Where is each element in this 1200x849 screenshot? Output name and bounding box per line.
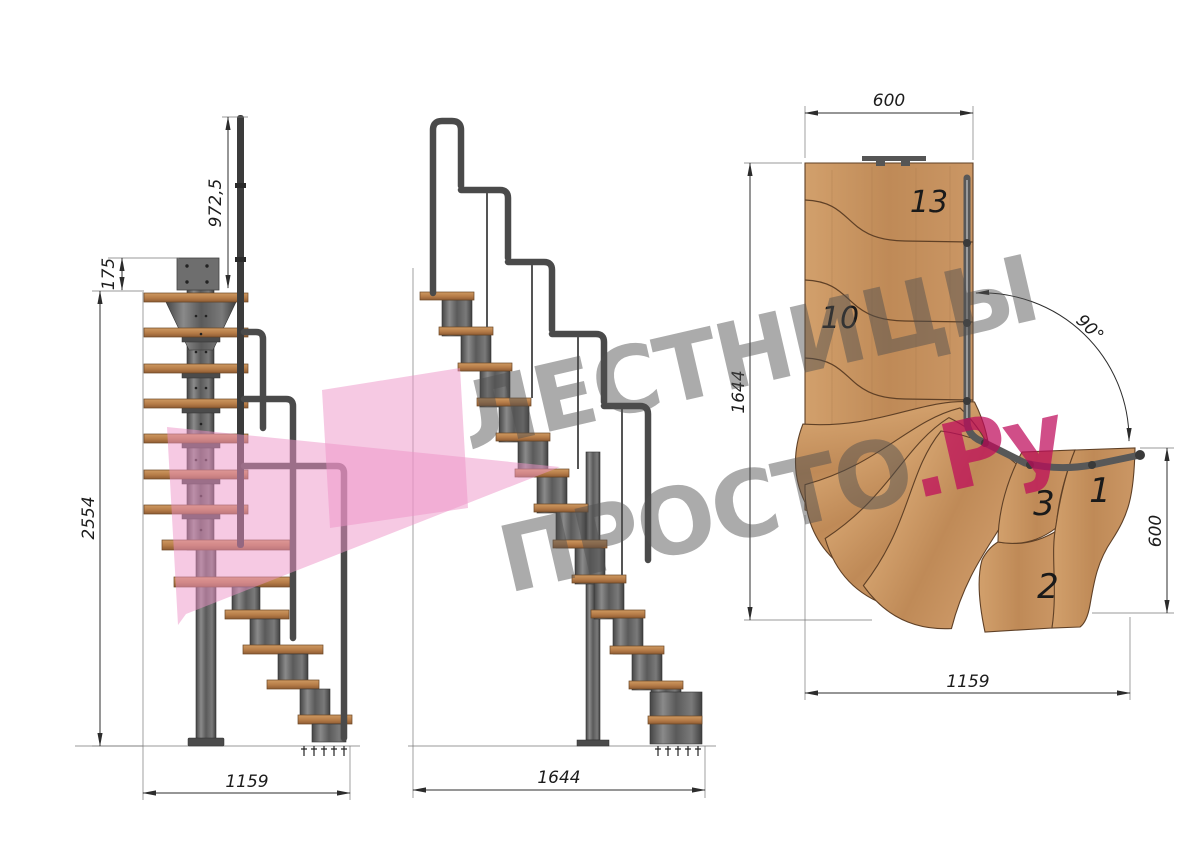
tread (591, 610, 645, 618)
post-base-plate (577, 740, 609, 746)
tread (439, 327, 493, 335)
tread (144, 364, 248, 373)
step-module (278, 654, 308, 682)
tread (610, 646, 664, 654)
tread (477, 398, 531, 406)
dim-turn-angle: 90° (1072, 311, 1108, 346)
dim-handrail-height: 972,5 (206, 179, 226, 228)
handrail-loop (433, 121, 461, 293)
side-view-steps (420, 292, 702, 744)
side-view-dimensions: 1644 (413, 746, 705, 798)
staircase-drawing-svg: 2554 175 972,5 1159 (0, 0, 1200, 849)
tread (225, 610, 289, 619)
tread (648, 716, 702, 724)
tread (629, 681, 683, 689)
plan-handrail (963, 178, 1145, 469)
tread (420, 292, 474, 300)
column-base-plate (188, 738, 224, 746)
tread (496, 433, 550, 441)
dim-left-length: 1644 (729, 370, 749, 413)
step-label-3: 3 (1033, 484, 1055, 524)
step-label-10: 10 (821, 301, 859, 336)
logo-shape-arrow (167, 427, 560, 625)
tread (144, 328, 248, 337)
tread (267, 680, 319, 689)
tread (572, 575, 626, 583)
dim-bottom-length: 1159 (946, 672, 989, 692)
dim-right-width: 600 (1146, 515, 1166, 547)
tread (553, 540, 607, 548)
plan-view: 13 10 3 1 2 600 1644 90° 600 1159 (729, 91, 1174, 700)
tread (243, 645, 323, 654)
dim-top-width: 600 (873, 91, 905, 111)
dim-total-height: 2554 (79, 496, 99, 539)
tread (144, 399, 248, 408)
column-flare (166, 302, 236, 350)
tread (458, 363, 512, 371)
step-label-13: 13 (910, 185, 948, 220)
step-module (300, 689, 330, 717)
dim-base-width: 1159 (225, 772, 268, 792)
tread (144, 293, 248, 302)
top-mounting-plate (177, 258, 219, 290)
step-module (250, 619, 280, 647)
tread (534, 504, 588, 512)
technical-drawing-page: 2554 175 972,5 1159 (0, 0, 1200, 849)
anchor-bolts (655, 746, 701, 756)
step-label-2: 2 (1037, 567, 1059, 607)
dim-top-rise: 175 (99, 258, 119, 290)
anchor-bolts (301, 746, 347, 756)
step-label-1: 1 (1089, 471, 1111, 511)
dim-total-run: 1644 (537, 768, 580, 788)
